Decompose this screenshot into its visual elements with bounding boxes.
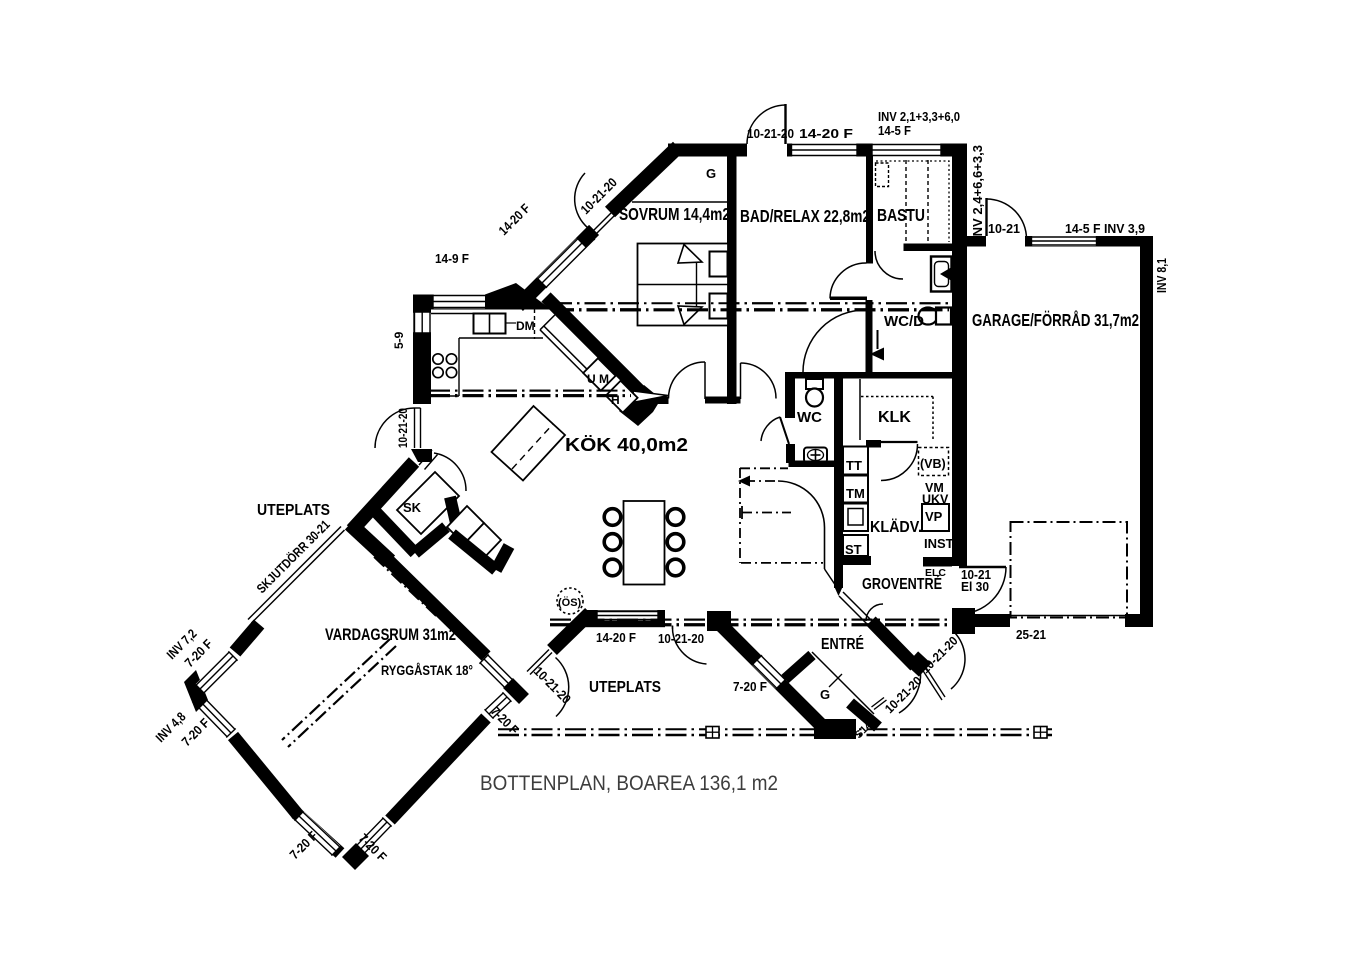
svg-text:10-21: 10-21 — [988, 221, 1020, 236]
svg-text:10-21-20: 10-21-20 — [658, 631, 704, 646]
svg-text:KÖK 40,0m2: KÖK 40,0m2 — [565, 435, 688, 455]
svg-text:ENTRÉ: ENTRÉ — [821, 634, 864, 653]
svg-text:SK: SK — [403, 500, 422, 515]
svg-text:GARAGE/FÖRRÅD 31,7m2: GARAGE/FÖRRÅD 31,7m2 — [972, 310, 1139, 330]
svg-text:KLÄDV.: KLÄDV. — [870, 518, 922, 536]
svg-text:INV 2,4+6,6+3,3: INV 2,4+6,6+3,3 — [970, 145, 985, 240]
svg-text:ELC: ELC — [925, 567, 946, 579]
svg-text:VARDAGSRUM 31m2: VARDAGSRUM 31m2 — [325, 626, 456, 644]
svg-text:RYGGÅSTAK 18°: RYGGÅSTAK 18° — [381, 663, 473, 678]
svg-text:(ÖS): (ÖS) — [558, 596, 582, 609]
svg-text:UKV: UKV — [922, 493, 949, 507]
svg-text:UTEPLATS: UTEPLATS — [589, 679, 661, 696]
svg-text:BAD/RELAX 22,8m2: BAD/RELAX 22,8m2 — [740, 206, 870, 226]
svg-text:G: G — [820, 687, 830, 702]
svg-text:BOTTENPLAN, BOAREA 136,1 m2: BOTTENPLAN, BOAREA 136,1 m2 — [480, 772, 778, 795]
svg-text:VP: VP — [925, 509, 943, 524]
svg-text:El 30: El 30 — [961, 579, 989, 594]
svg-text:5-9: 5-9 — [392, 331, 406, 349]
svg-text:25-21: 25-21 — [1016, 627, 1046, 642]
svg-text:7-20 F: 7-20 F — [733, 679, 767, 694]
svg-text:INST: INST — [924, 536, 954, 551]
svg-text:14-5 F: 14-5 F — [878, 123, 911, 138]
svg-text:ST: ST — [845, 542, 862, 557]
svg-text:INV 2,1+3,3+6,0: INV 2,1+3,3+6,0 — [878, 109, 960, 124]
svg-text:14-20 F: 14-20 F — [596, 630, 636, 645]
svg-text:U M: U M — [587, 372, 609, 386]
svg-text:UTEPLATS: UTEPLATS — [257, 502, 330, 519]
svg-text:14-20 F: 14-20 F — [799, 126, 853, 141]
svg-text:SOVRUM 14,4m2: SOVRUM 14,4m2 — [619, 204, 730, 224]
svg-text:(VB): (VB) — [920, 457, 946, 471]
svg-text:DM: DM — [516, 319, 535, 333]
svg-text:INV 8,1: INV 8,1 — [1154, 258, 1169, 293]
svg-text:KLK: KLK — [878, 409, 911, 426]
svg-text:G: G — [706, 166, 716, 181]
svg-text:TM: TM — [846, 486, 865, 501]
svg-text:BASTU: BASTU — [877, 205, 925, 225]
svg-text:TT: TT — [846, 458, 862, 473]
svg-text:10-21-20: 10-21-20 — [398, 408, 410, 448]
svg-text:14-9 F: 14-9 F — [435, 251, 469, 266]
svg-text:10-21-20: 10-21-20 — [747, 126, 794, 141]
svg-text:14-5 F INV 3,9: 14-5 F INV 3,9 — [1065, 221, 1145, 236]
svg-text:WC/D: WC/D — [884, 313, 924, 330]
svg-text:WC: WC — [797, 409, 822, 426]
